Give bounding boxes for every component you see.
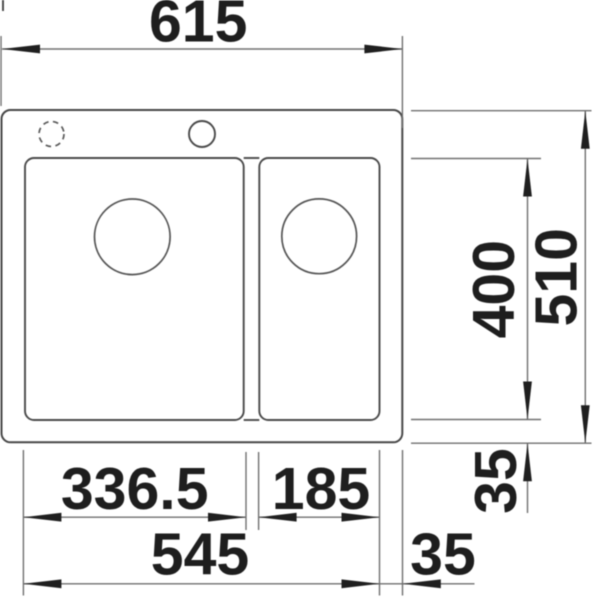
svg-text:510: 510 [524, 228, 590, 326]
svg-text:400: 400 [461, 240, 527, 338]
svg-text:35: 35 [463, 448, 529, 514]
svg-text:185: 185 [272, 456, 370, 522]
svg-text:615: 615 [149, 0, 247, 55]
svg-text:545: 545 [151, 522, 249, 588]
svg-text:336.5: 336.5 [61, 456, 209, 522]
svg-text:35: 35 [410, 522, 476, 588]
